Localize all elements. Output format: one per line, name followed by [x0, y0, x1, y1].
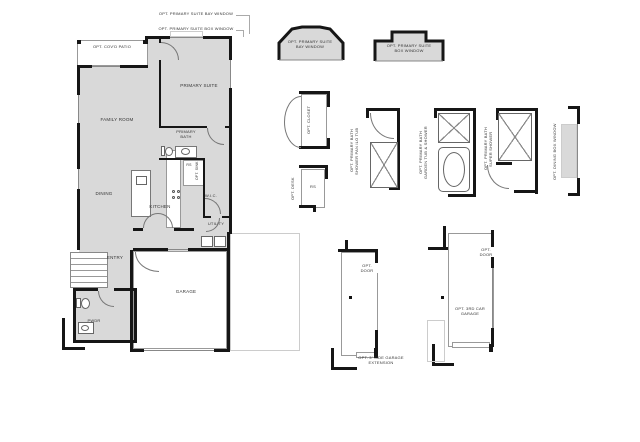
room-label-kitchen: KITCHEN [147, 204, 173, 210]
wall [159, 126, 207, 128]
wall [434, 108, 476, 111]
wall [73, 340, 137, 343]
wall [568, 193, 580, 196]
wall [77, 123, 80, 169]
toilet-bowl [165, 147, 173, 156]
room-label-patio: OPT. COV'D PATIO [90, 44, 134, 49]
option-label-line: SUPER SHOWER [488, 111, 493, 187]
wall [535, 108, 538, 194]
wall [133, 228, 143, 231]
wall [496, 108, 538, 111]
wall [338, 249, 378, 252]
window [170, 37, 203, 38]
room-label-garage: GARAGE [172, 289, 200, 295]
wall [133, 248, 168, 251]
wall [366, 108, 400, 111]
wall [159, 60, 161, 128]
room-fill-living-wing [79, 67, 148, 250]
room-label-dining: DINING [90, 191, 118, 197]
door-swing [370, 113, 394, 139]
window [92, 66, 120, 67]
wall-line [492, 268, 493, 330]
wall [203, 36, 232, 39]
wall [434, 108, 437, 118]
box-window-bump [561, 124, 577, 178]
toilet-bowl [81, 298, 90, 309]
wall [514, 190, 538, 193]
window [78, 95, 79, 123]
option-label-line: SHOWER PAN ILO TUB [354, 113, 359, 189]
room-label-opt-sink: OPT. SINK [195, 157, 200, 185]
wall [577, 106, 580, 124]
optional-bay-footprint [230, 233, 300, 351]
wall-point [349, 296, 352, 299]
room-label-primary-bath: PRIMARY BATH [172, 129, 200, 139]
option-label-desk: OPT. DESK [290, 170, 295, 207]
island-sink [136, 176, 147, 185]
option-label-desk-rs: RS [302, 184, 324, 189]
room-label-wic: W.I.C. [202, 193, 220, 198]
leader-line [236, 15, 250, 16]
room-label-utility: UTILITY [202, 221, 230, 226]
wall [73, 288, 76, 343]
wall [331, 367, 357, 370]
door-swing [284, 96, 301, 122]
option-label-line: GARDEN TUB & SHOWER [423, 111, 428, 195]
super-shower [498, 113, 532, 161]
wall [327, 91, 330, 107]
wall [327, 138, 330, 147]
option-label-third-car-door: OPT. DOOR [476, 247, 496, 257]
cooktop-burner [177, 190, 180, 193]
option-label-box-window: OPT. PRIMARY SUITE BOX WINDOW [376, 43, 442, 53]
option-label-closet: OPT. CLOSET [306, 97, 311, 143]
leader-line [243, 30, 244, 37]
wall [130, 250, 133, 352]
room-label-entry: ENTRY [103, 255, 127, 261]
option-label-third-car-garage: OPT. 3RD CAR GARAGE [446, 306, 494, 316]
wall [214, 349, 230, 352]
wall [366, 108, 369, 118]
room-label-family-room: FAMILY ROOM [92, 117, 142, 123]
wall [375, 330, 378, 348]
window [577, 124, 578, 178]
wall [188, 248, 230, 251]
wall [76, 288, 98, 291]
wall [77, 65, 92, 68]
note-box-window: OPT. PRIMARY SUITE BOX WINDOW [156, 26, 236, 31]
wall [313, 205, 316, 212]
bath-sink [181, 148, 190, 155]
wall [62, 318, 65, 350]
note-bay-window: OPT. PRIMARY SUITE BAY WINDOW [156, 11, 236, 16]
shower-pan [370, 142, 398, 188]
wall [145, 36, 148, 44]
wall [229, 36, 232, 60]
patio-post [77, 40, 81, 44]
ghost-outline [427, 320, 445, 362]
window [78, 169, 79, 189]
leader-line [249, 15, 250, 34]
shower [438, 113, 470, 143]
wall [130, 349, 144, 352]
wall [325, 165, 328, 179]
option-label-garden-tub: OPT. PRIMARY BATH GARDEN TUB & SHOWER [418, 111, 428, 195]
option-label-line: BOX WINDOW [376, 48, 442, 53]
wall [448, 194, 476, 197]
wall [227, 232, 230, 352]
wall [299, 91, 330, 94]
wall [299, 146, 330, 149]
room-label-pwdr: PWDR [84, 318, 104, 323]
wall [299, 165, 328, 168]
pwdr-sink [81, 325, 89, 331]
garage-door [144, 350, 214, 351]
option-label-super-shower: OPT. PRIMARY BATH SUPER SHOWER [483, 111, 493, 187]
wall [145, 36, 170, 39]
closet-outline [301, 94, 327, 148]
dryer [214, 236, 226, 247]
wall [432, 363, 454, 366]
wall [443, 226, 446, 250]
window [230, 60, 231, 88]
room-label-primary-suite: PRIMARY SUITE [171, 83, 227, 89]
option-label-line: BAY WINDOW [278, 44, 342, 49]
washer [201, 236, 213, 247]
wall [120, 65, 148, 68]
wall [134, 291, 137, 340]
cooktop-burner [177, 196, 180, 199]
cooktop-burner [172, 190, 175, 193]
wall [62, 347, 85, 350]
wall [229, 88, 232, 234]
wall [77, 65, 80, 95]
option-label-garage-extension: OPT. 3' SIDE GARAGE EXTENSION [350, 355, 412, 365]
option-label-dining-box-window: OPT. DINING BOX WINDOW [552, 116, 557, 188]
tub-basin [443, 152, 465, 187]
wall [345, 240, 348, 249]
room-label-rs: RS [184, 163, 194, 168]
garage-door [452, 342, 490, 348]
wall [473, 108, 476, 197]
wall-point [441, 296, 444, 299]
floor-plan-sheet: OPT. PRIMARY SUITE BAY WINDOW OPT. PRIMA… [0, 0, 640, 442]
wall [222, 216, 232, 218]
wall [489, 344, 493, 352]
wall [225, 126, 232, 128]
option-label-garage-ext-door: OPT. DOOR [356, 263, 378, 273]
wall [174, 228, 194, 231]
wall [77, 189, 80, 250]
option-label-shower-pan: OPT. PRIMARY BATH SHOWER PAN ILO TUB [349, 113, 359, 189]
door-swing [284, 122, 301, 148]
option-label-bay-window: OPT. PRIMARY SUITE BAY WINDOW [278, 39, 342, 49]
cooktop-burner [172, 196, 175, 199]
door-opening [168, 249, 188, 250]
